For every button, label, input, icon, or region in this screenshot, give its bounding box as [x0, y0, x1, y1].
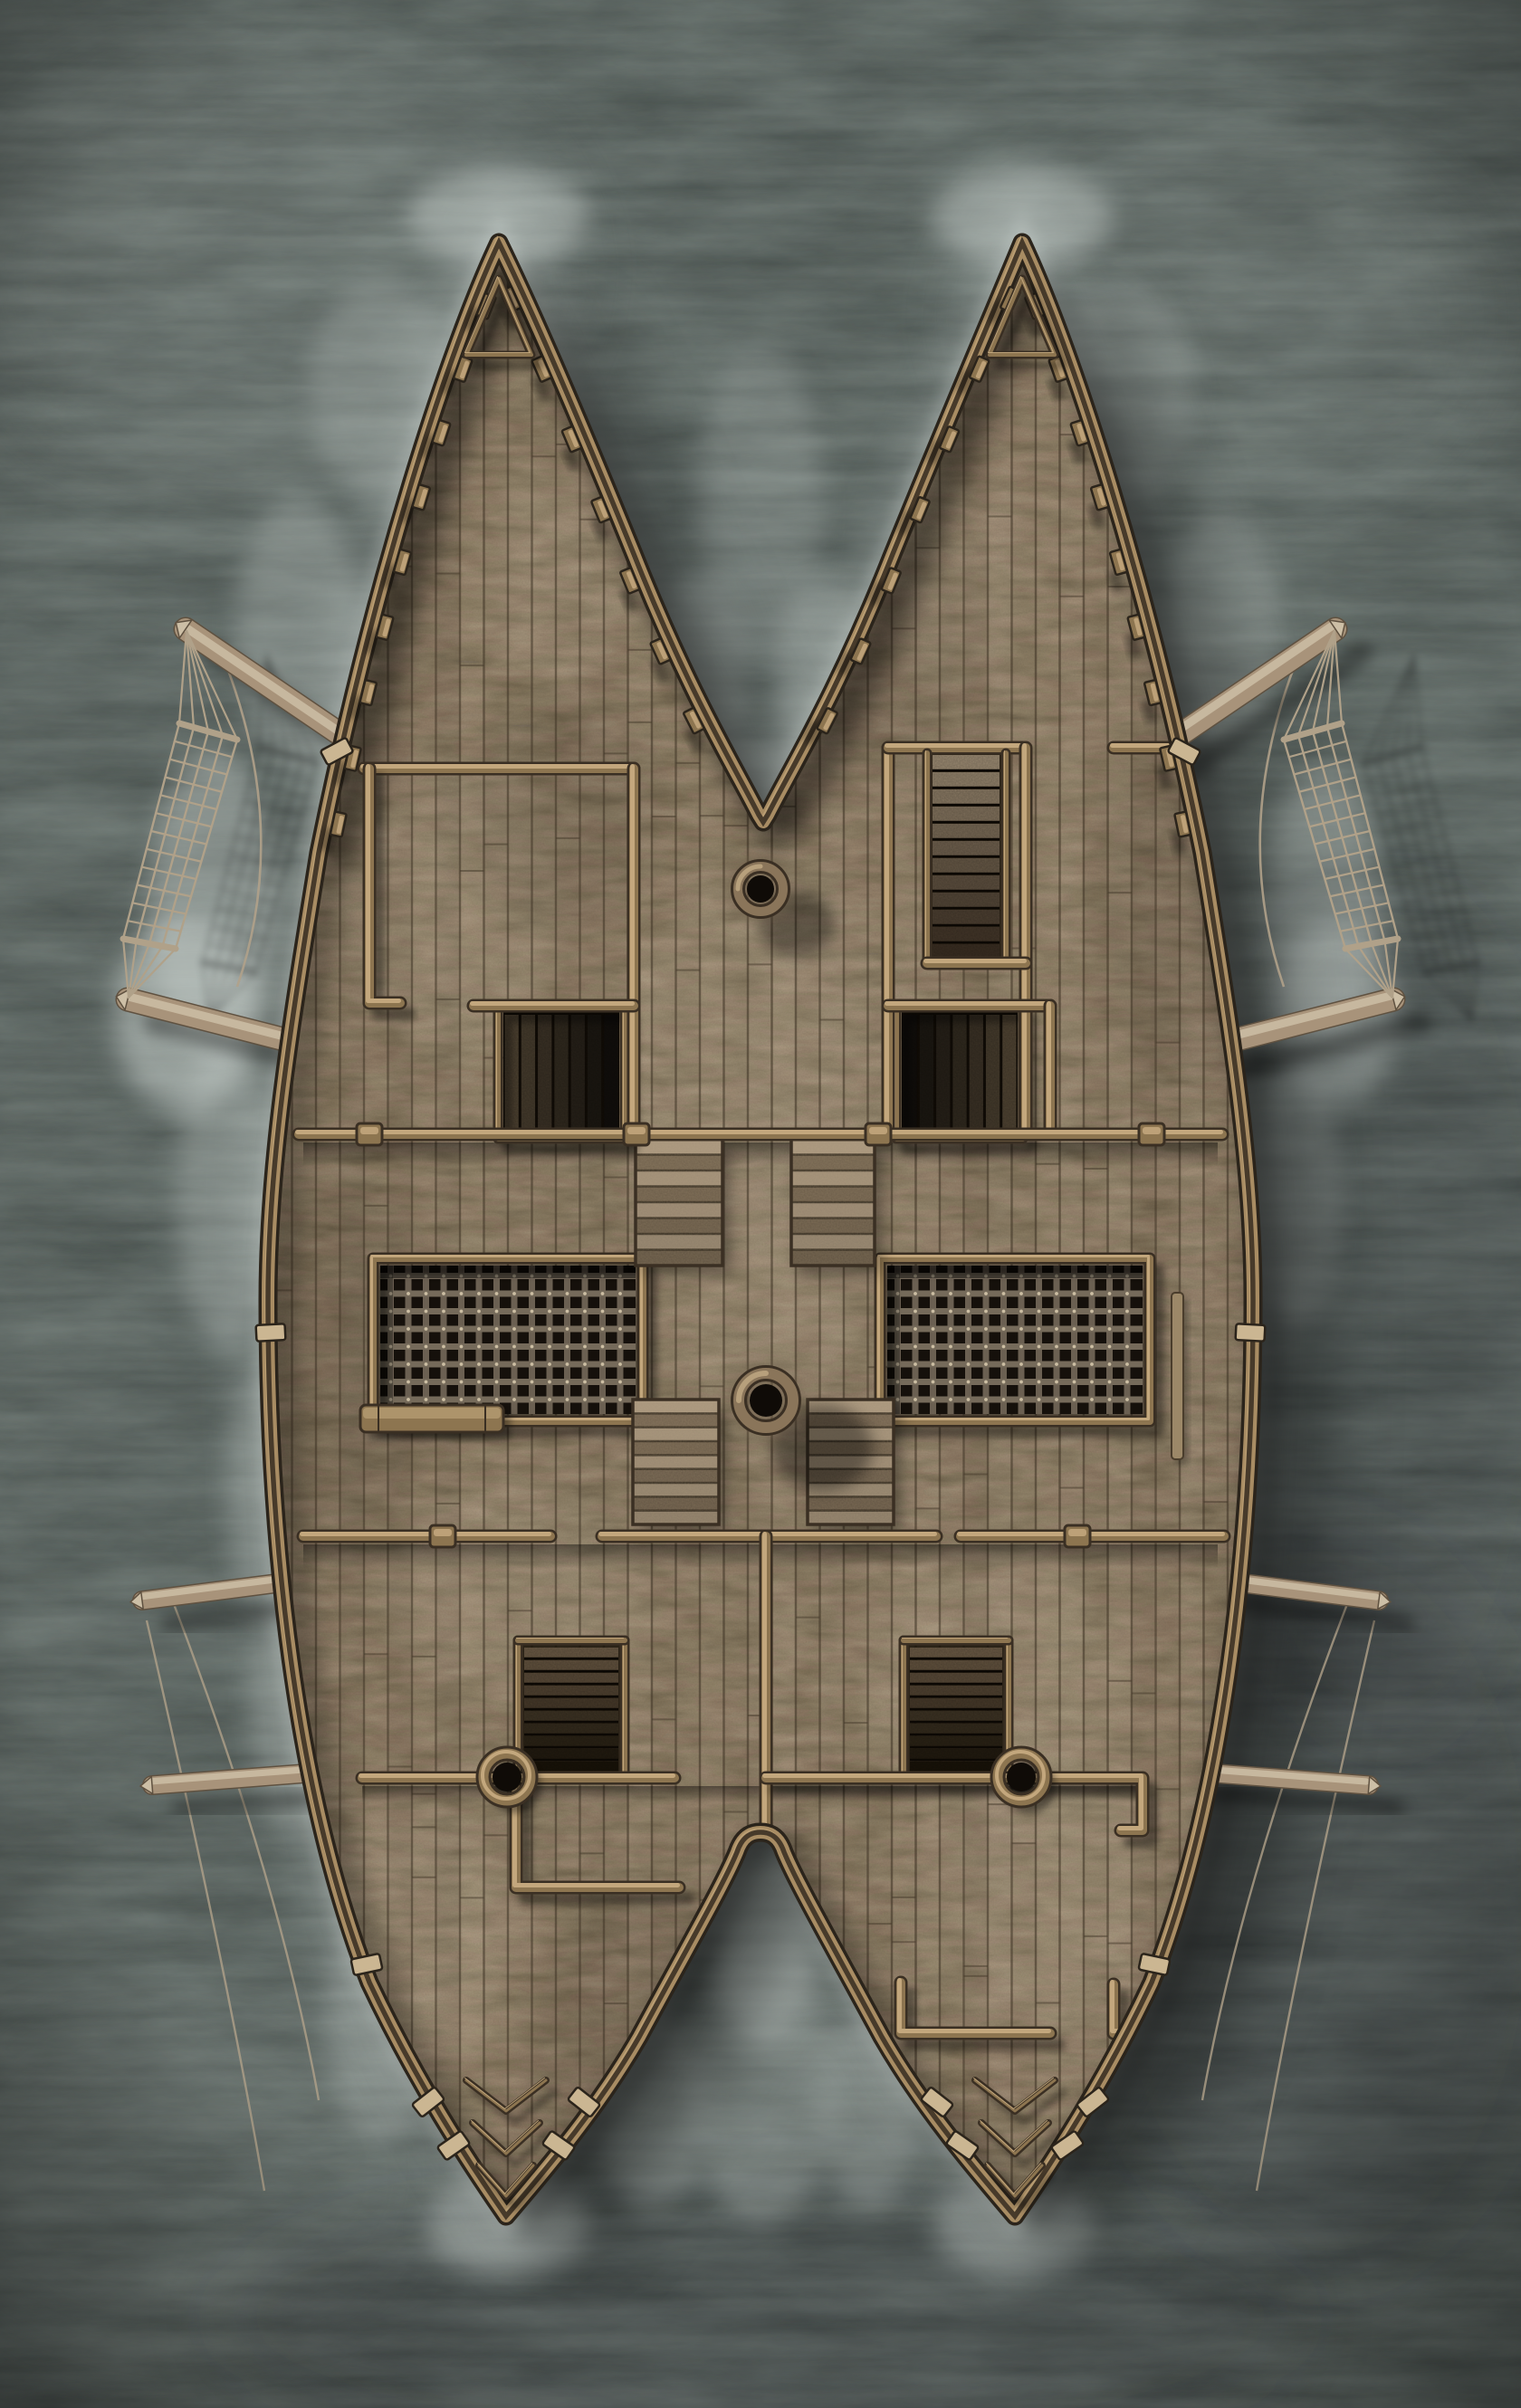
battle-map-stage	[0, 0, 1521, 2408]
ship-battle-map-canvas	[0, 0, 1521, 2408]
vignette-overlay	[0, 0, 1521, 2408]
